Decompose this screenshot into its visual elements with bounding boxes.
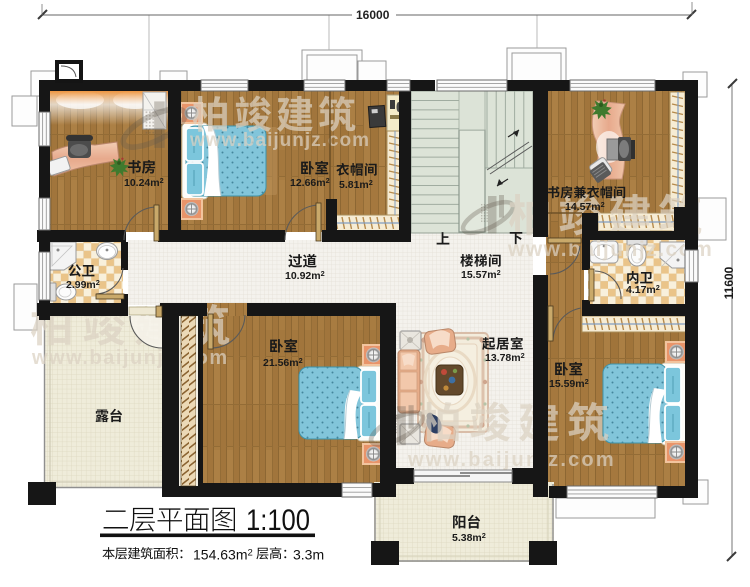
svg-text:21.56m2: 21.56m2 bbox=[263, 356, 303, 369]
svg-text:154.63m2: 154.63m2 bbox=[193, 547, 253, 563]
svg-text:2.99m2: 2.99m2 bbox=[66, 278, 100, 291]
svg-text:12.66m2: 12.66m2 bbox=[290, 176, 330, 189]
svg-text:3.3m: 3.3m bbox=[293, 547, 324, 563]
svg-text:1:100: 1:100 bbox=[246, 504, 310, 537]
svg-text:15.57m2: 15.57m2 bbox=[461, 268, 501, 281]
svg-text:4.17m2: 4.17m2 bbox=[626, 283, 660, 296]
svg-text:11600: 11600 bbox=[722, 266, 736, 299]
svg-text:www.baijunjz.com: www.baijunjz.com bbox=[507, 238, 713, 261]
svg-text:14.57m2: 14.57m2 bbox=[565, 200, 605, 213]
svg-text:15.59m2: 15.59m2 bbox=[549, 377, 589, 390]
svg-text:13.78m2: 13.78m2 bbox=[485, 351, 525, 364]
svg-text:10.24m2: 10.24m2 bbox=[124, 176, 164, 189]
svg-text:10.92m2: 10.92m2 bbox=[285, 269, 325, 282]
svg-text:16000: 16000 bbox=[356, 8, 390, 22]
svg-text:5.38m2: 5.38m2 bbox=[452, 531, 486, 544]
svg-text:5.81m2: 5.81m2 bbox=[339, 178, 373, 191]
svg-text:www.baijunjz.com: www.baijunjz.com bbox=[189, 130, 370, 151]
svg-text:www.baijunjz.com: www.baijunjz.com bbox=[407, 449, 616, 471]
